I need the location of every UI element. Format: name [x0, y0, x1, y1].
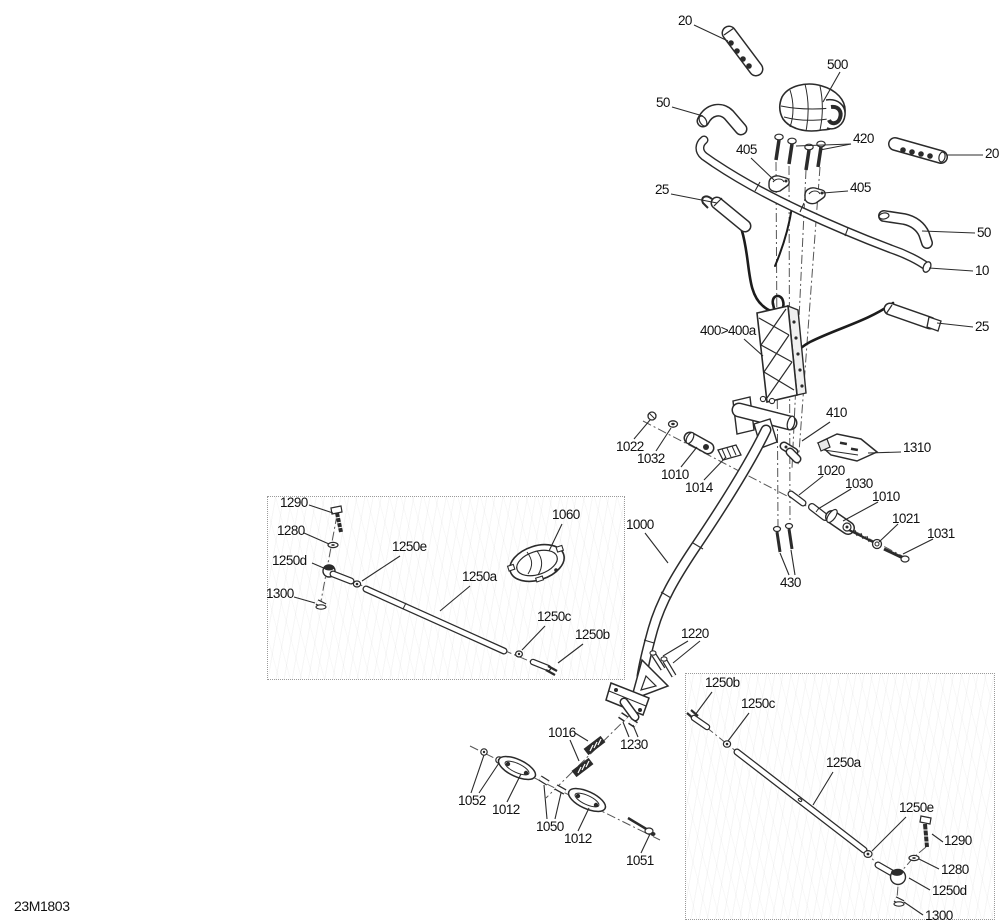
leader-1250a-rod-left [440, 586, 470, 611]
clamp-410 [784, 446, 797, 460]
fasteners-right [791, 494, 909, 562]
steering-arm-stack [481, 749, 656, 836]
leader-1230-nuts [633, 725, 638, 737]
leader-1250b-balljoint-right [695, 692, 712, 715]
callout-1310-bracket: 1310 [903, 441, 931, 455]
callout-1020-pin: 1020 [817, 464, 845, 478]
callout-1010-block-right: 1010 [872, 490, 900, 504]
callout-1051-bolt: 1051 [626, 854, 654, 868]
callout-1280-washer-right: 1280 [941, 863, 969, 877]
callout-1016-plates: 1016 [548, 726, 576, 740]
callout-1050-sleeves: 1050 [536, 820, 564, 834]
leader-1031-bolt [903, 539, 933, 554]
handlebar-pad [780, 84, 845, 131]
grip-20-right [895, 144, 946, 163]
leader-1250a-rod-right [813, 772, 833, 805]
leader-1290-bolt-left [309, 505, 333, 513]
leader-1021-nut [879, 524, 898, 542]
callout-20-grip-right: 20 [985, 147, 999, 161]
callout-1300-nut-left: 1300 [266, 587, 294, 601]
leader-1250e-nut-right [872, 817, 906, 851]
leader-1016-plates [575, 733, 588, 741]
riser-tower [757, 306, 806, 404]
tie-rod-set-right [687, 710, 931, 906]
callout-410-clamp: 410 [826, 406, 847, 420]
leader-50-elbow-left [672, 107, 703, 116]
callout-1250c-washer-right: 1250c [741, 697, 775, 711]
callout-1300-nut-right: 1300 [925, 909, 953, 923]
centerlines [321, 162, 926, 898]
leader-1016-plates [570, 740, 579, 761]
leader-1280-washer-right [919, 859, 939, 869]
callout-430-bolts: 430 [780, 576, 801, 590]
grip-20-left [724, 28, 756, 69]
leader-1050-sleeves [555, 793, 561, 819]
leader-1250d-rodend-left [312, 563, 326, 569]
leader-1052-screws [479, 763, 499, 793]
callout-1250b-balljoint-right: 1250b [705, 676, 740, 690]
callout-1021-nut: 1021 [892, 512, 920, 526]
callout-25-grip-left: 25 [655, 183, 669, 197]
diagram-code: 23M1803 [14, 899, 70, 913]
leader-1022-nut [634, 420, 650, 439]
cap-1060 [504, 538, 570, 589]
handlebar [700, 140, 933, 273]
callout-1012-plate-b: 1012 [564, 832, 592, 846]
leader-1250c-washer-right [728, 713, 749, 741]
callout-1031-bolt: 1031 [927, 527, 955, 541]
plates-1016 [574, 739, 603, 774]
leader-410-clamp [802, 422, 830, 441]
callout-1060-cap: 1060 [552, 508, 580, 522]
leader-1014-plate [704, 457, 726, 480]
leader-430-bolts [791, 550, 795, 575]
leader-1250d-rodend-right [909, 878, 930, 890]
callout-1250a-rod-left: 1250a [462, 570, 497, 584]
callout-420-screws: 420 [853, 132, 874, 146]
leader-10-handlebar [929, 268, 973, 271]
grip-25-right [886, 305, 941, 331]
leader-1250e-nut-left [362, 556, 400, 581]
callout-1280-washer-left: 1280 [277, 524, 305, 538]
leader-1012-plate-a [507, 774, 521, 802]
callout-1052-screws: 1052 [458, 794, 486, 808]
callout-1030-sleeve: 1030 [845, 477, 873, 491]
callout-405-clamp-lower: 405 [850, 181, 871, 195]
leader-1280-washer-left [304, 533, 329, 544]
leader-1290-bolt-right [932, 834, 943, 842]
callout-1290-bolt-right: 1290 [944, 834, 972, 848]
callout-1250a-rod-right: 1250a [826, 756, 861, 770]
leader-1030-sleeve [818, 489, 851, 509]
elbow-50-right [879, 212, 927, 243]
riser-bolts-430 [774, 524, 793, 553]
leader-1230-nuts [623, 722, 629, 737]
leader-1010-block-left [681, 447, 697, 467]
leader-1020-pin [799, 476, 823, 495]
leader-1000-column [645, 533, 668, 563]
leader-1250c-washer-left [522, 626, 545, 650]
leader-1220-bolts [673, 641, 700, 663]
leader-50-elbow-right [922, 231, 975, 233]
leader-1050-sleeves [544, 785, 547, 819]
leader-1052-screws [471, 755, 484, 793]
diagram-artwork [0, 0, 1000, 924]
callout-1000-column: 1000 [626, 518, 654, 532]
leader-1012-plate-b [578, 808, 589, 831]
callout-1250b-balljoint-left: 1250b [575, 628, 610, 642]
callout-1250e-nut-left: 1250e [392, 540, 427, 554]
leader-405-clamp-lower [823, 191, 848, 193]
parts-diagram-page: 20500504204052040525501025400>400a410131… [0, 0, 1000, 924]
callout-1250d-rodend-left: 1250d [272, 554, 307, 568]
leader-lines [294, 25, 983, 915]
leader-405-clamp-upper [751, 158, 774, 180]
callout-1230-nuts: 1230 [620, 738, 648, 752]
leader-25-grip-right [937, 323, 973, 327]
callout-10-handlebar: 10 [975, 264, 989, 278]
callout-50-elbow-right: 50 [977, 226, 991, 240]
leader-1010-block-right [843, 502, 878, 521]
callout-1014-plate: 1014 [685, 481, 713, 495]
callout-1250e-nut-right: 1250e [899, 801, 934, 815]
elbow-50-left [697, 110, 741, 129]
bracket-1310 [818, 434, 877, 461]
callout-405-clamp-upper: 405 [736, 143, 757, 157]
callout-400-400a-riser: 400>400a [700, 324, 756, 338]
leader-1300-nut-left [294, 597, 315, 603]
riser-screws [775, 134, 825, 170]
callout-1032-washer: 1032 [637, 452, 665, 466]
tie-rod-set-left [316, 506, 557, 675]
callout-50-elbow-left: 50 [656, 96, 670, 110]
callout-1250c-washer-left: 1250c [537, 610, 571, 624]
callout-1250d-rodend-right: 1250d [932, 884, 967, 898]
callout-500-pad: 500 [827, 58, 848, 72]
callout-1220-bolts: 1220 [681, 627, 709, 641]
leader-1051-bolt [641, 834, 650, 853]
leader-430-bolts [780, 553, 789, 575]
callout-1290-bolt-left: 1290 [280, 496, 308, 510]
leader-1250b-balljoint-left [558, 644, 583, 663]
leader-1300-nut-right [904, 902, 923, 915]
callout-25-grip-right: 25 [975, 320, 989, 334]
callout-1012-plate-a: 1012 [492, 803, 520, 817]
callout-20-grip-left: 20 [678, 14, 692, 28]
